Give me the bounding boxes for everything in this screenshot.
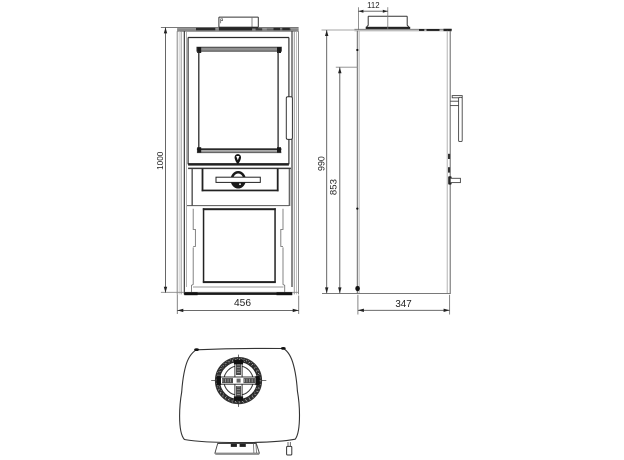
svg-text:990: 990 <box>316 156 326 171</box>
svg-text:347: 347 <box>395 299 411 310</box>
svg-text:456: 456 <box>234 298 251 309</box>
svg-text:1000: 1000 <box>156 151 165 170</box>
svg-text:853: 853 <box>329 179 340 195</box>
svg-text:112: 112 <box>367 1 379 10</box>
